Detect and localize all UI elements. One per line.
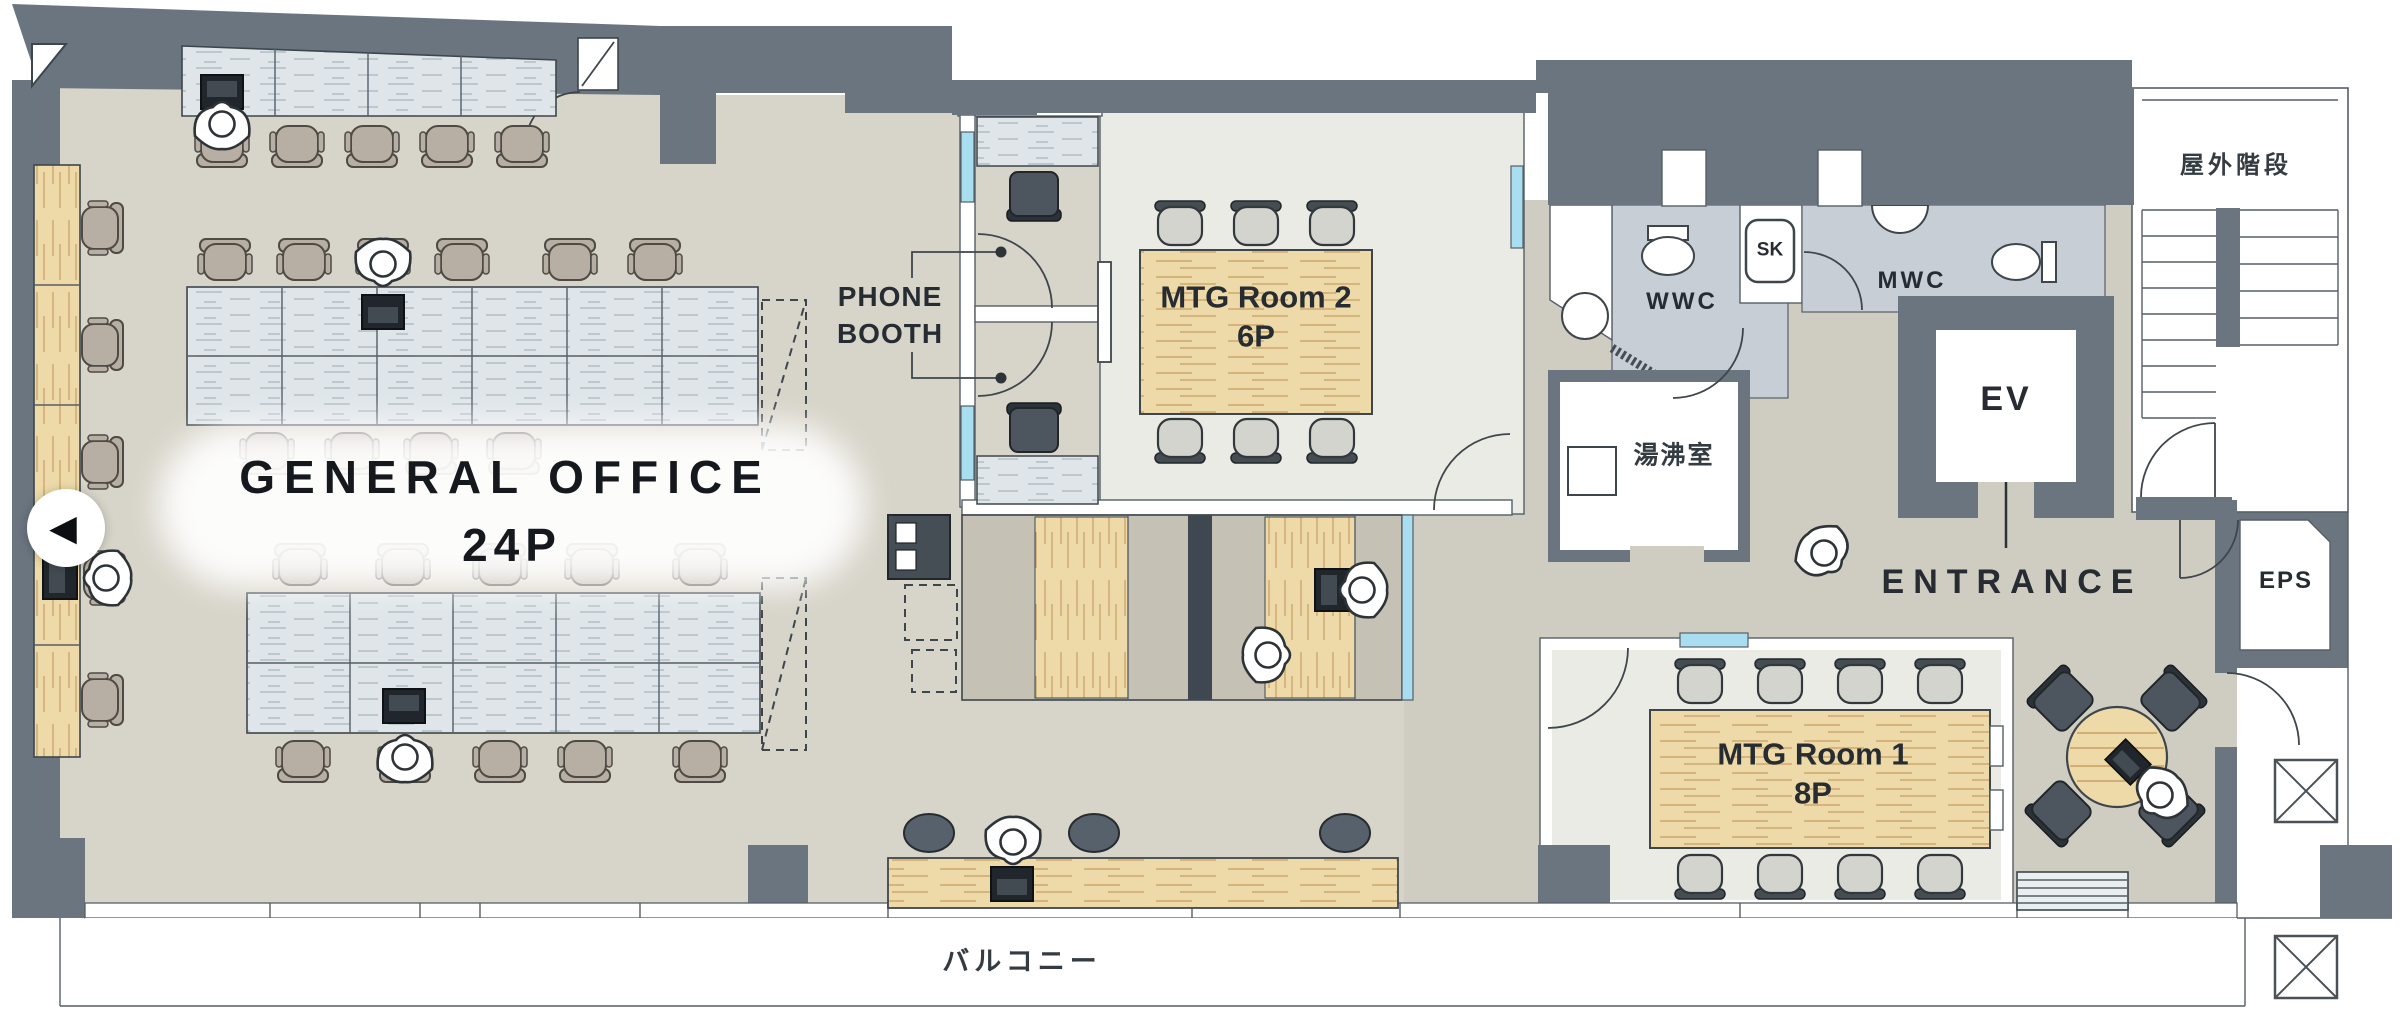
mwc-label: MWC xyxy=(1878,269,1947,293)
ev-label: EV xyxy=(1980,382,2031,416)
general-office-title: GENERAL OFFICE xyxy=(239,454,771,500)
room-ev xyxy=(1898,296,2114,548)
entrance-label: ENTRANCE xyxy=(1882,565,2143,599)
mtg-room2-name: MTG Room 2 xyxy=(1160,282,1351,313)
back-arrow-icon: ◀ xyxy=(49,507,77,549)
floorplan-page: GENERAL OFFICE 24P PHONE BOOTH MTG Room … xyxy=(0,0,2408,1032)
carousel-prev-button[interactable]: ◀ xyxy=(27,489,105,567)
phone-booth-label-line2: BOOTH xyxy=(837,320,943,348)
focus-pods xyxy=(962,515,1413,700)
balcony xyxy=(60,918,2245,1006)
balcony-label: バルコニー xyxy=(942,949,1101,976)
mtg-room1-name: MTG Room 1 xyxy=(1717,739,1908,770)
outdoor-stairs-label: 屋外階段 xyxy=(2180,154,2292,178)
ac-louver xyxy=(2017,872,2128,910)
phone-booth-label-line1: PHONE xyxy=(838,283,943,311)
mtg-room1-capacity: 8P xyxy=(1794,778,1832,809)
mtg-room2-capacity: 6P xyxy=(1237,321,1275,352)
hot-water-room-label: 湯沸室 xyxy=(1633,444,1714,469)
top-desk-row xyxy=(182,46,556,167)
room-mwc xyxy=(1802,205,2105,312)
sk-label: SK xyxy=(1757,241,1783,260)
wwc-label: WWC xyxy=(1646,290,1718,314)
general-office-capacity: 24P xyxy=(462,522,562,568)
eps-label: EPS xyxy=(2259,569,2313,593)
